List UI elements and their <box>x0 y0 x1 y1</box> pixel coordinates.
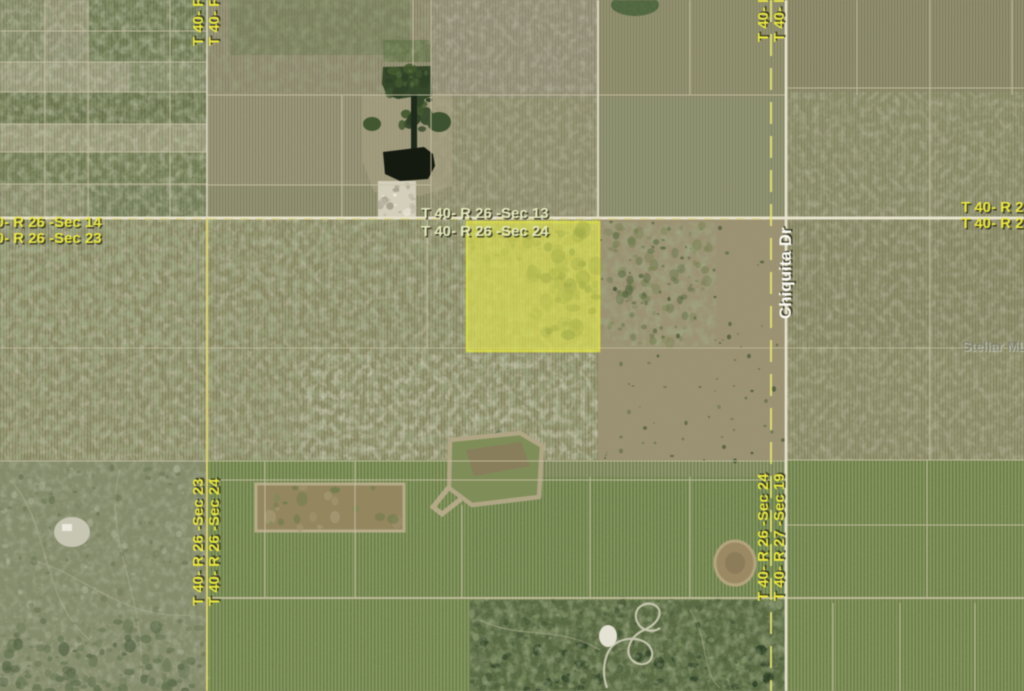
svg-text:T 40- R 26 -Sec 23: T 40- R 26 -Sec 23 <box>0 230 102 247</box>
svg-text:T 40- R 26 -Sec 13: T 40- R 26 -Sec 13 <box>206 0 223 46</box>
svg-text:T 40- R 27 -Sec 19: T 40- R 27 -Sec 19 <box>771 473 788 601</box>
svg-text:T 40- R 26 -Sec 18: T 40- R 26 -Sec 18 <box>961 199 1024 216</box>
svg-text:T 40- R 26 -Sec 24: T 40- R 26 -Sec 24 <box>421 223 549 240</box>
svg-text:T 40- R 26 -Sec 24: T 40- R 26 -Sec 24 <box>755 473 772 601</box>
svg-text:Chiquita Dr: Chiquita Dr <box>776 227 795 319</box>
svg-text:T 40- R 26 -Sec 14: T 40- R 26 -Sec 14 <box>0 214 102 231</box>
svg-text:T 40- R 26 -Sec 13: T 40- R 26 -Sec 13 <box>755 0 772 42</box>
svg-text:T 40- R 26 -Sec 14: T 40- R 26 -Sec 14 <box>190 0 207 46</box>
svg-text:Stellar MLS: Stellar MLS <box>962 339 1024 354</box>
svg-text:T 40- R 26 -Sec 24: T 40- R 26 -Sec 24 <box>206 478 223 606</box>
svg-text:T 40- R 27 -Sec 18: T 40- R 27 -Sec 18 <box>771 0 788 42</box>
svg-text:T 40- R 26 -Sec 13: T 40- R 26 -Sec 13 <box>421 205 549 222</box>
svg-text:T 40- R 26 -Sec 23: T 40- R 26 -Sec 23 <box>190 478 207 606</box>
svg-text:T 40- R 27 -Sec 13: T 40- R 27 -Sec 13 <box>961 215 1024 232</box>
